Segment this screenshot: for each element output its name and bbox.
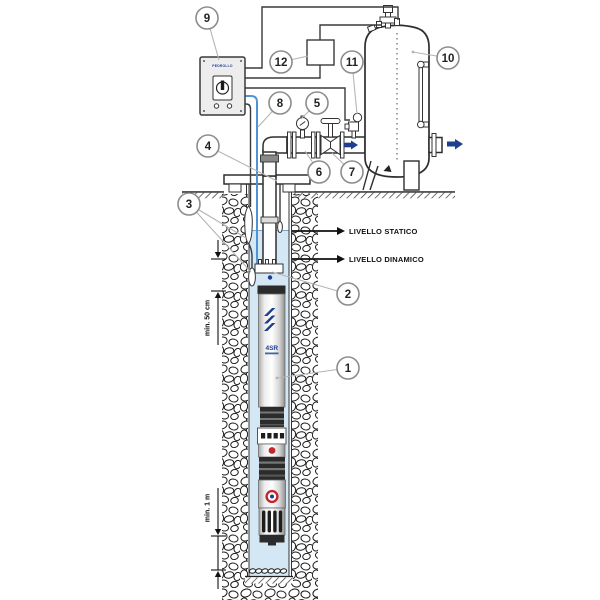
min-clearance-label: min. 1 m bbox=[205, 494, 212, 522]
callout-8: 8 bbox=[269, 92, 291, 114]
svg-text:9: 9 bbox=[204, 13, 210, 25]
pressure-gauge bbox=[297, 116, 309, 138]
arrow-right-icon bbox=[337, 227, 345, 235]
installation-diagram: PEDROLLO 4SR bbox=[0, 0, 600, 600]
diagram-canvas: PEDROLLO 4SR bbox=[0, 0, 600, 600]
svg-text:8: 8 bbox=[277, 98, 284, 110]
callout-7: 7 bbox=[341, 161, 363, 183]
svg-text:6: 6 bbox=[316, 167, 322, 179]
indicator-light bbox=[227, 104, 231, 108]
pump-top-guard bbox=[258, 286, 286, 295]
svg-text:2: 2 bbox=[345, 289, 351, 301]
rock-wall-right bbox=[292, 194, 318, 600]
min-submersion-label: min. 50 cm bbox=[205, 300, 212, 336]
callout-10: 10 bbox=[437, 47, 459, 69]
submersible-pump: 4SR bbox=[255, 260, 286, 546]
svg-text:7: 7 bbox=[349, 167, 355, 179]
pump-coupling bbox=[260, 407, 284, 427]
panel-logo: PEDROLLO bbox=[212, 64, 233, 68]
control-panel: PEDROLLO bbox=[200, 57, 245, 115]
indicator-light bbox=[214, 104, 218, 108]
callout-3: 3 bbox=[178, 193, 200, 215]
callout-12: 12 bbox=[270, 51, 292, 73]
callout-4: 4 bbox=[197, 135, 219, 157]
callout-5: 5 bbox=[306, 92, 328, 114]
intake-screen bbox=[259, 508, 285, 535]
svg-text:3: 3 bbox=[186, 199, 192, 211]
svg-text:12: 12 bbox=[275, 57, 288, 69]
callout-6: 6 bbox=[308, 161, 330, 183]
motor-upper-section bbox=[259, 457, 285, 480]
elbow-pipe bbox=[263, 137, 287, 153]
callout-2: 2 bbox=[337, 283, 359, 305]
arrow-right-icon bbox=[337, 255, 345, 263]
motor-end-cap bbox=[260, 535, 285, 543]
motor-red-dot bbox=[269, 447, 276, 454]
pump-model-label: 4SR bbox=[265, 345, 278, 352]
svg-text:4: 4 bbox=[205, 141, 212, 153]
callout-11: 11 bbox=[341, 51, 363, 73]
probe-cable bbox=[245, 104, 251, 207]
rock-bottom bbox=[222, 582, 318, 600]
svg-text:10: 10 bbox=[442, 53, 455, 65]
svg-text:5: 5 bbox=[314, 98, 321, 110]
pressure-switch-box bbox=[307, 40, 334, 65]
tank-fitting bbox=[345, 113, 362, 138]
pressure-tank bbox=[363, 6, 463, 191]
motor-emblem bbox=[267, 491, 278, 502]
callout-9: 9 bbox=[196, 7, 218, 29]
outlet-flow-arrow-icon bbox=[447, 139, 463, 150]
static-level-label: LIVELLO STATICO bbox=[349, 227, 418, 236]
callout-1: 1 bbox=[337, 357, 359, 379]
riser-pipe bbox=[261, 150, 279, 265]
dynamic-level-label: LIVELLO DINAMICO bbox=[349, 255, 424, 264]
svg-text:1: 1 bbox=[345, 363, 352, 375]
cable-clamp-band bbox=[258, 428, 287, 444]
tank-outlet bbox=[429, 134, 463, 157]
svg-text:11: 11 bbox=[346, 57, 359, 69]
